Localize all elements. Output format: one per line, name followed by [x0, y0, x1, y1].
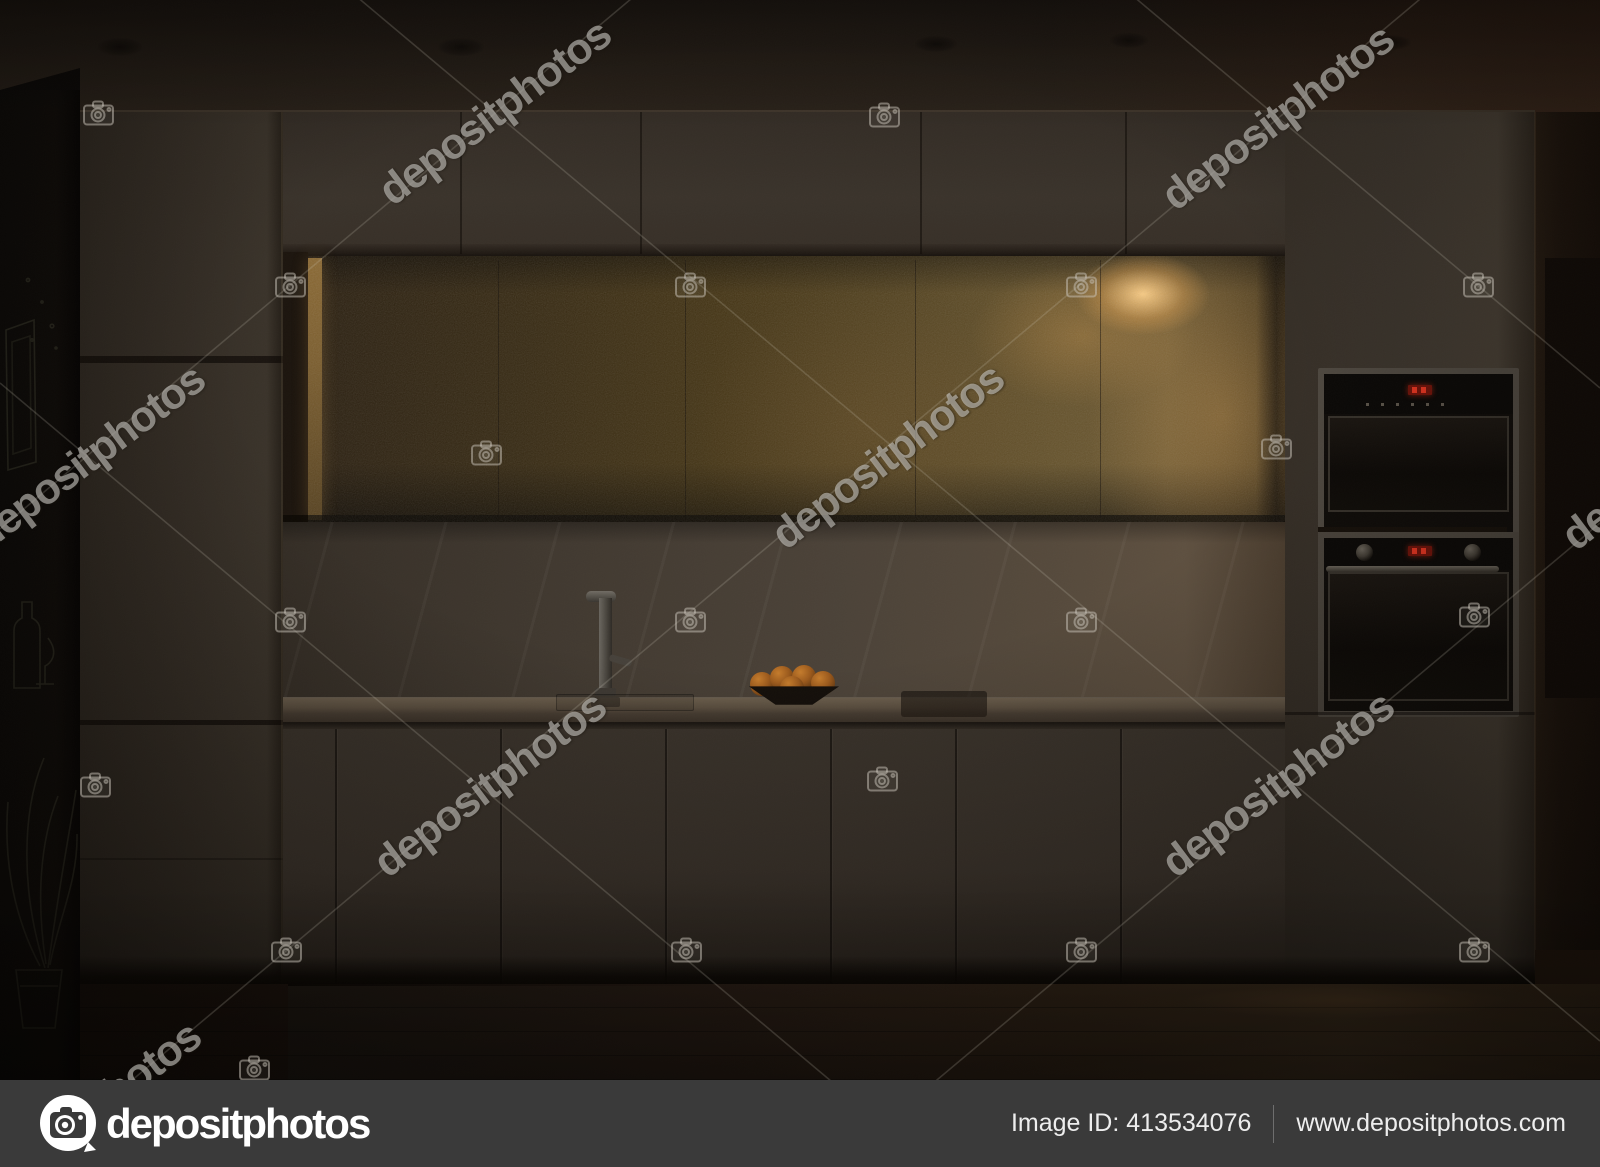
camera-icon: [237, 1053, 275, 1081]
camera-icon: [1457, 600, 1495, 631]
camera-icon: [273, 270, 311, 301]
camera-icon: [865, 764, 903, 795]
divider: [1273, 1105, 1274, 1143]
camera-icon: [81, 98, 119, 129]
camera-icon: [867, 100, 905, 131]
camera-icon: [469, 438, 507, 469]
camera-icon: [1064, 270, 1102, 301]
camera-icon: [1461, 270, 1499, 301]
camera-icon: [78, 770, 116, 801]
camera-icon: [1064, 605, 1102, 636]
footer-info: Image ID: 413534076 www.depositphotos.co…: [1011, 1105, 1566, 1143]
camera-icon: [669, 935, 707, 966]
kitchen-photo: depositphotosdepositphotosdepositphotosd…: [0, 0, 1600, 1080]
camera-icon: [273, 605, 311, 636]
camera-icon: [673, 605, 711, 636]
brand-name: depositphotos: [106, 1100, 369, 1148]
footer-bar: depositphotos Image ID: 413534076 www.de…: [0, 1080, 1600, 1167]
image-id: Image ID: 413534076: [1011, 1109, 1251, 1138]
camera-icon: [269, 935, 307, 966]
website-url: www.depositphotos.com: [1296, 1109, 1566, 1138]
camera-icon: [1064, 935, 1102, 966]
camera-icon: [1457, 935, 1495, 966]
watermark-line: [0, 523, 1600, 1080]
camera-logo-icon: [38, 1094, 98, 1154]
camera-icon: [673, 270, 711, 301]
watermark-layer: depositphotosdepositphotosdepositphotosd…: [0, 0, 1600, 1080]
brand-logo: depositphotos: [38, 1094, 369, 1154]
camera-icon: [1259, 432, 1297, 463]
